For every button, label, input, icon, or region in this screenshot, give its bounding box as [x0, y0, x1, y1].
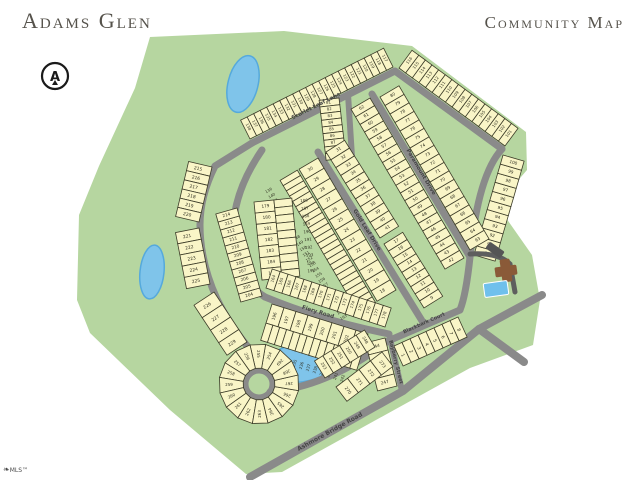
logo-swirl-icon: ❧ — [3, 465, 10, 474]
lot-number: 259 — [225, 382, 233, 387]
lot-number: 180 — [262, 214, 271, 220]
lot-number: 189 — [302, 221, 310, 227]
lot-number: 184 — [267, 259, 276, 265]
lot-number: 187 — [301, 205, 309, 211]
lot-number: 255 — [256, 350, 261, 358]
lot-number: 190 — [303, 229, 311, 235]
logo-text: MLS™ — [10, 467, 28, 474]
community-map-svg: 1171181191201211221231241251261271281291… — [0, 0, 640, 480]
lot-number: 179 — [261, 203, 270, 209]
page-subtitle: Community Map — [485, 13, 624, 33]
lot-number: 263 — [257, 410, 262, 418]
swimming-pool — [483, 280, 509, 297]
lot-number: 182 — [265, 236, 274, 242]
lot-number: 192 — [305, 244, 313, 250]
lot-number: 195 — [307, 268, 315, 274]
lot-number: 267 — [285, 381, 293, 386]
lot-number: 183 — [266, 248, 275, 254]
page-title: Adams Glen — [22, 8, 152, 34]
lot-number: 186 — [300, 197, 308, 203]
community-map-page: 1171181191201211221231241251261271281291… — [0, 0, 640, 480]
mls-logo: ❧MLS™ — [3, 465, 28, 474]
lot-number: 194 — [306, 260, 314, 266]
lot-number: 191 — [304, 236, 312, 242]
lot-number: 188 — [302, 213, 310, 219]
lot-number: 181 — [264, 225, 273, 231]
lot-number: 193 — [306, 252, 314, 258]
